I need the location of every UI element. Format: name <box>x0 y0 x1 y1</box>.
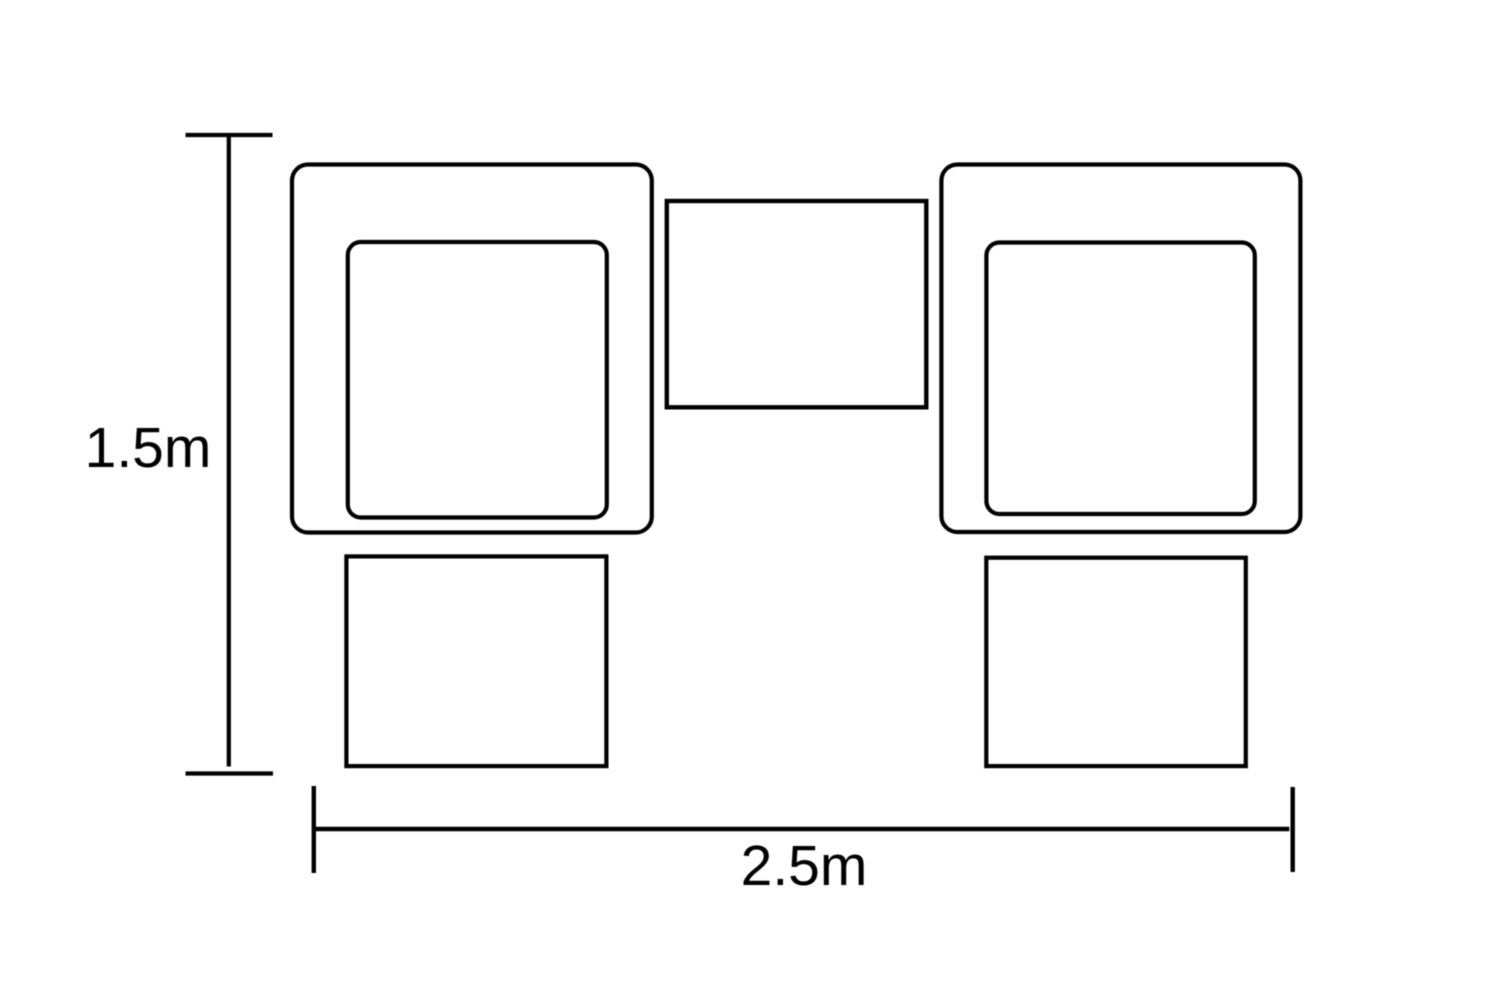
svg-text:2.5m: 2.5m <box>741 834 868 898</box>
svg-text:1.5m: 1.5m <box>85 416 212 480</box>
